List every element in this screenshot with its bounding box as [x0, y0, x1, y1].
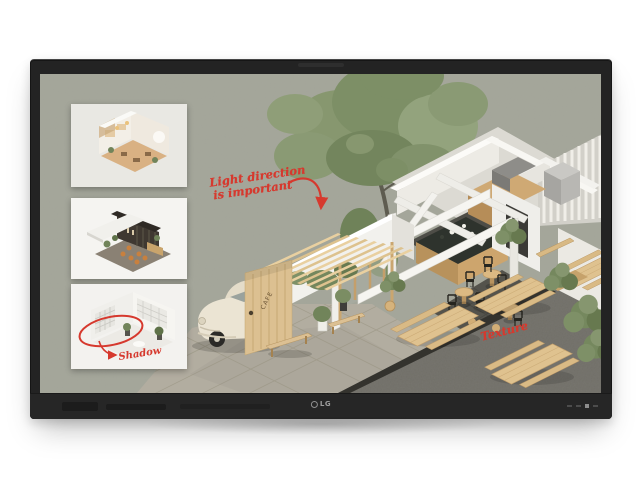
- ir-sensor-icon: [593, 405, 598, 407]
- ir-sensor-icon: [576, 405, 581, 407]
- brand-label: LG: [320, 401, 331, 408]
- speaker-grille: [62, 402, 98, 411]
- bottom-bezel: LG: [30, 393, 612, 419]
- whiteboard-canvas[interactable]: CAFE: [40, 74, 601, 394]
- door-handle: [249, 311, 253, 315]
- fridge: [544, 162, 580, 205]
- thumbnail-warm-room[interactable]: [71, 104, 187, 187]
- ir-sensor-icon: [567, 405, 572, 407]
- sensor-strip: [298, 63, 344, 67]
- control-indicators: [567, 404, 598, 408]
- speaker-grille: [106, 404, 166, 410]
- thumbnail-dark-cafe[interactable]: [71, 198, 187, 279]
- power-indicator-icon: [585, 404, 589, 408]
- product-backdrop: CAFE: [0, 0, 640, 480]
- pen-tray: [180, 404, 270, 409]
- thumbnail-bright-room[interactable]: Shadow: [71, 284, 187, 369]
- lg-display: CAFE: [30, 59, 612, 419]
- lg-logo: LG: [311, 401, 331, 408]
- lg-logo-icon: [311, 401, 318, 408]
- display-shadow: [70, 417, 572, 445]
